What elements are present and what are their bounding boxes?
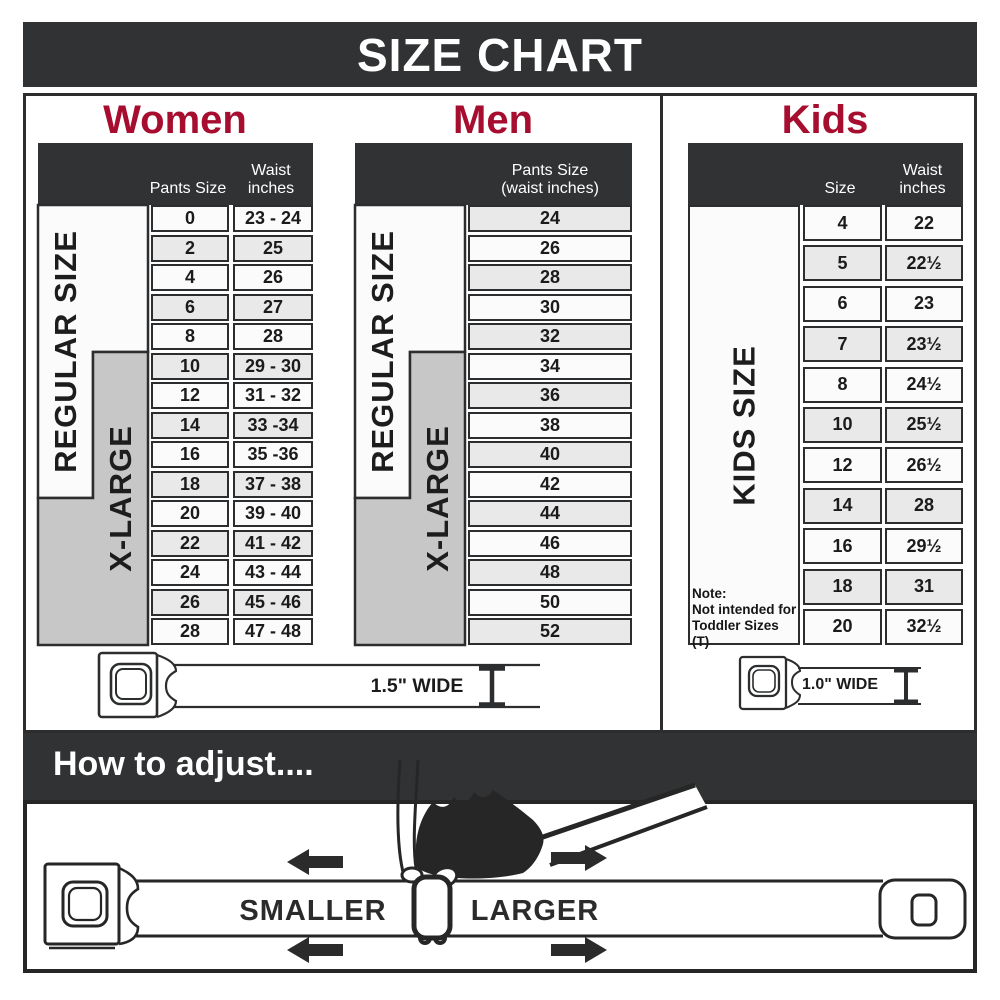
table-cell: 37 - 38 — [233, 471, 313, 498]
panel-divider — [660, 93, 663, 733]
table-cell: 14 — [803, 488, 882, 524]
table-cell: 16 — [803, 528, 882, 564]
table-cell: 5 — [803, 245, 882, 281]
table-cell: 12 — [803, 447, 882, 483]
table-cell: 27 — [233, 294, 313, 321]
women-waist-header-line1: Waist — [231, 162, 311, 180]
table-cell: 26 — [151, 589, 229, 616]
table-cell: 29 - 30 — [233, 353, 313, 380]
kids-note-line1: Note: — [692, 586, 798, 602]
table-cell: 31 - 32 — [233, 382, 313, 409]
men-regular-size-label: REGULAR SIZE — [362, 205, 403, 498]
table-cell: 28 — [233, 323, 313, 350]
kids-note-line3: Toddler Sizes (T) — [692, 618, 798, 650]
table-cell: 28 — [151, 618, 229, 645]
table-cell: 38 — [468, 412, 632, 439]
table-cell: 45 - 46 — [233, 589, 313, 616]
adult-belt-width-label: 1.5" WIDE — [342, 675, 492, 698]
table-cell: 7 — [803, 326, 882, 362]
table-cell: 18 — [151, 471, 229, 498]
women-waist-header-line2: inches — [231, 180, 311, 198]
women-table-header: Pants Size Waist inches — [38, 143, 313, 205]
table-cell: 10 — [803, 407, 882, 443]
table-cell: 23 - 24 — [233, 205, 313, 232]
table-cell: 8 — [151, 323, 229, 350]
table-cell: 20 — [803, 609, 882, 645]
table-cell: 28 — [468, 264, 632, 291]
men-xlarge-label: X-LARGE — [417, 352, 458, 645]
table-cell: 0 — [151, 205, 229, 232]
women-waist-column: 23 - 242526272829 - 3031 - 3233 -3435 -3… — [233, 205, 313, 645]
women-pants-size-header: Pants Size — [148, 180, 228, 198]
table-cell: 52 — [468, 618, 632, 645]
table-cell: 12 — [151, 382, 229, 409]
table-cell: 26 — [233, 264, 313, 291]
table-cell: 50 — [468, 589, 632, 616]
table-cell: 32 — [468, 323, 632, 350]
table-cell: 24 — [468, 205, 632, 232]
table-cell: 39 - 40 — [233, 500, 313, 527]
table-cell: 26½ — [885, 447, 963, 483]
table-cell: 44 — [468, 500, 632, 527]
table-cell: 16 — [151, 441, 229, 468]
table-cell: 24½ — [885, 367, 963, 403]
table-cell: 35 -36 — [233, 441, 313, 468]
table-cell: 40 — [468, 441, 632, 468]
table-cell: 33 -34 — [233, 412, 313, 439]
table-cell: 28 — [885, 488, 963, 524]
table-cell: 30 — [468, 294, 632, 321]
table-cell: 22 — [151, 530, 229, 557]
adjust-diagram-panel — [23, 800, 977, 973]
men-header-line2: (waist inches) — [468, 180, 632, 198]
table-cell: 4 — [803, 205, 882, 241]
women-waist-header: Waist inches — [231, 162, 311, 198]
table-cell: 46 — [468, 530, 632, 557]
men-table-header: Pants Size (waist inches) — [355, 143, 632, 205]
larger-label: LARGER — [435, 895, 635, 928]
page-title: SIZE CHART — [357, 28, 643, 82]
how-to-adjust-heading: How to adjust.... — [53, 745, 314, 784]
table-cell: 10 — [151, 353, 229, 380]
table-cell: 32½ — [885, 609, 963, 645]
kids-note: Note: Not intended for Toddler Sizes (T) — [692, 586, 798, 650]
kids-waist-header: Waist inches — [884, 162, 961, 198]
table-cell: 34 — [468, 353, 632, 380]
table-cell: 4 — [151, 264, 229, 291]
size-chart-page: SIZE CHART Women Men Kids Pants Size Wai… — [0, 0, 1000, 1000]
table-cell: 36 — [468, 382, 632, 409]
kids-waist-column: 2222½2323½24½25½26½2829½3132½ — [885, 205, 963, 645]
table-cell: 14 — [151, 412, 229, 439]
table-cell: 25 — [233, 235, 313, 262]
table-cell: 6 — [803, 286, 882, 322]
size-chart-banner: SIZE CHART — [23, 22, 977, 87]
table-cell: 48 — [468, 559, 632, 586]
table-cell: 18 — [803, 569, 882, 605]
kids-table-header: Size Waist inches — [688, 143, 963, 205]
table-cell: 23½ — [885, 326, 963, 362]
table-cell: 42 — [468, 471, 632, 498]
women-pants-size-column: 0246810121416182022242628 — [151, 205, 229, 645]
table-cell: 6 — [151, 294, 229, 321]
table-cell: 25½ — [885, 407, 963, 443]
kids-waist-header-line2: inches — [884, 180, 961, 198]
table-cell: 8 — [803, 367, 882, 403]
kids-size-header: Size — [800, 180, 880, 198]
kids-waist-header-line1: Waist — [884, 162, 961, 180]
kids-size-column: 45678101214161820 — [803, 205, 882, 645]
women-section-title: Women — [65, 98, 285, 143]
women-xlarge-label: X-LARGE — [100, 352, 141, 645]
smaller-label: SMALLER — [213, 895, 413, 928]
table-cell: 29½ — [885, 528, 963, 564]
men-header-line1: Pants Size — [468, 162, 632, 180]
men-section-title: Men — [383, 98, 603, 143]
table-cell: 22½ — [885, 245, 963, 281]
kids-section-title: Kids — [715, 98, 935, 143]
women-regular-size-label: REGULAR SIZE — [45, 205, 86, 498]
men-pants-size-column: 242628303234363840424446485052 — [468, 205, 632, 645]
table-cell: 22 — [885, 205, 963, 241]
table-cell: 31 — [885, 569, 963, 605]
kids-note-line2: Not intended for — [692, 602, 798, 618]
table-cell: 23 — [885, 286, 963, 322]
table-cell: 2 — [151, 235, 229, 262]
table-cell: 26 — [468, 235, 632, 262]
kids-size-vertical-label: KIDS SIZE — [724, 276, 765, 576]
kids-belt-width-label: 1.0" WIDE — [770, 676, 910, 694]
table-cell: 20 — [151, 500, 229, 527]
men-pants-size-header: Pants Size (waist inches) — [468, 162, 632, 198]
table-cell: 24 — [151, 559, 229, 586]
table-cell: 43 - 44 — [233, 559, 313, 586]
table-cell: 47 - 48 — [233, 618, 313, 645]
table-cell: 41 - 42 — [233, 530, 313, 557]
